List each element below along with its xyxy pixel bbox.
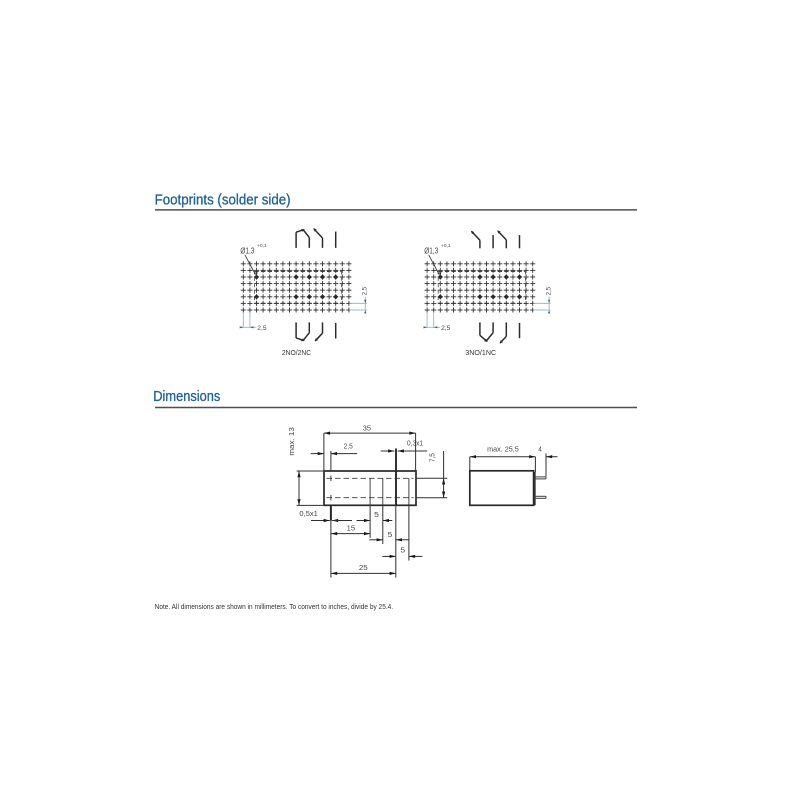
svg-text:max. 13: max. 13 bbox=[287, 427, 296, 456]
svg-text:0,5x1: 0,5x1 bbox=[299, 509, 318, 518]
svg-text:+0,1: +0,1 bbox=[441, 243, 451, 249]
svg-text:7,5: 7,5 bbox=[428, 453, 437, 462]
svg-text:5: 5 bbox=[400, 545, 405, 554]
svg-text:0,3x1: 0,3x1 bbox=[407, 438, 423, 447]
svg-text:35: 35 bbox=[363, 424, 371, 433]
svg-text:3NO/1NC: 3NO/1NC bbox=[465, 348, 496, 357]
svg-text:15: 15 bbox=[347, 523, 355, 532]
svg-text:Footprints (solder side): Footprints (solder side) bbox=[155, 192, 291, 208]
svg-text:2NO/2NC: 2NO/2NC bbox=[282, 348, 312, 357]
svg-text:2,5: 2,5 bbox=[362, 286, 369, 295]
svg-text:2,5: 2,5 bbox=[441, 325, 451, 332]
svg-text:2,5: 2,5 bbox=[257, 325, 267, 332]
svg-text:25: 25 bbox=[359, 563, 368, 572]
svg-text:2,5: 2,5 bbox=[546, 286, 553, 295]
svg-text:5: 5 bbox=[388, 530, 393, 539]
svg-text:+0,1: +0,1 bbox=[257, 243, 267, 249]
svg-text:Ø1,3: Ø1,3 bbox=[240, 245, 254, 255]
svg-text:Dimensions: Dimensions bbox=[153, 389, 220, 405]
svg-text:5: 5 bbox=[374, 510, 379, 519]
svg-text:max. 25,5: max. 25,5 bbox=[487, 445, 519, 454]
svg-text:4: 4 bbox=[538, 445, 542, 454]
svg-text:Ø1,3: Ø1,3 bbox=[424, 245, 438, 255]
svg-text:Note. All dimensions are shown: Note. All dimensions are shown in millim… bbox=[155, 602, 394, 611]
svg-text:2,5: 2,5 bbox=[344, 441, 353, 450]
